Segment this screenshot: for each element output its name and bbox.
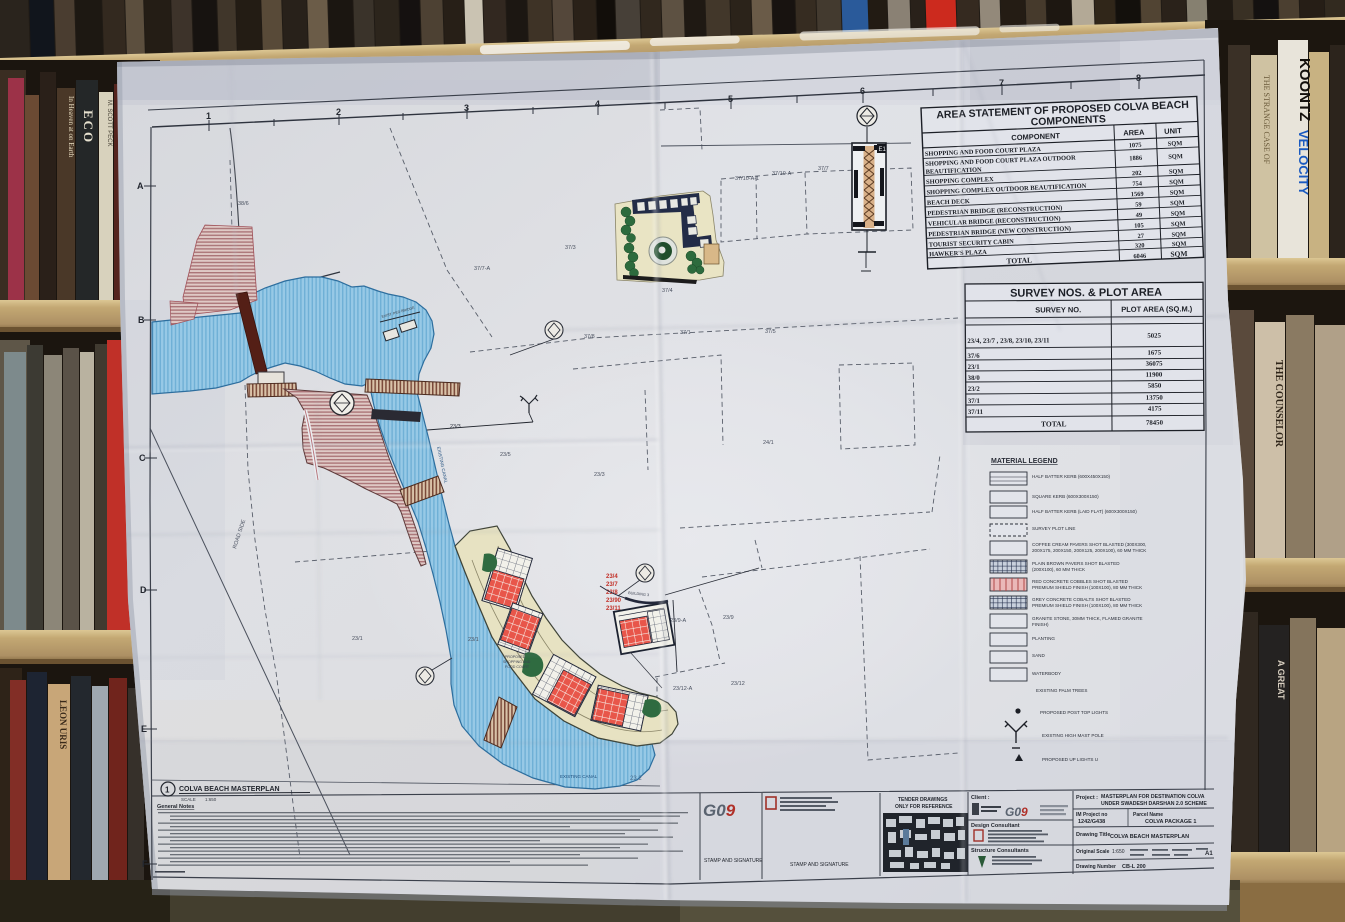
svg-text:Project :: Project : bbox=[1076, 795, 1098, 801]
svg-text:37/10-A: 37/10-A bbox=[772, 171, 792, 177]
svg-text:EXISTING CANAL: EXISTING CANAL bbox=[560, 774, 598, 779]
svg-text:THE STRANGE CASE OF: THE STRANGE CASE OF bbox=[1262, 75, 1271, 165]
svg-text:37/6: 37/6 bbox=[967, 353, 980, 360]
svg-text:Drawing Title: Drawing Title bbox=[1076, 832, 1110, 838]
svg-text:PREMIUM SHIELD FINISH (100X100: PREMIUM SHIELD FINISH (100X100), 80 MM T… bbox=[1032, 603, 1143, 608]
svg-text:SQM: SQM bbox=[1169, 179, 1184, 187]
svg-text:23/1: 23/1 bbox=[352, 636, 363, 642]
svg-text:4175: 4175 bbox=[1148, 406, 1162, 413]
svg-text:M. SCOTT PECK: M. SCOTT PECK bbox=[106, 100, 112, 147]
svg-text:PROPOSED UP LIGHTS U: PROPOSED UP LIGHTS U bbox=[1042, 757, 1098, 762]
svg-text:CB-L 200: CB-L 200 bbox=[1122, 864, 1146, 870]
svg-text:37/11: 37/11 bbox=[968, 409, 984, 416]
svg-text:5850: 5850 bbox=[1148, 383, 1162, 390]
svg-text:SURVEY PLOT LINE: SURVEY PLOT LINE bbox=[1032, 526, 1075, 531]
svg-text:(200X100), 60 MM THICK: (200X100), 60 MM THICK bbox=[1032, 567, 1086, 572]
svg-text:1886: 1886 bbox=[1129, 155, 1143, 163]
svg-text:SAND: SAND bbox=[1032, 653, 1045, 658]
svg-text:UNDER SWADESH DARSHAN 2.0 SCHE: UNDER SWADESH DARSHAN 2.0 SCHEME bbox=[1101, 801, 1207, 807]
svg-text:23/1: 23/1 bbox=[468, 637, 479, 643]
svg-text:GRANITE STONE, 30MM THICK, FLA: GRANITE STONE, 30MM THICK, FLAMED GRANIT… bbox=[1032, 616, 1143, 621]
svg-text:THE COUNSELOR: THE COUNSELOR bbox=[1273, 360, 1284, 448]
svg-text:23/3: 23/3 bbox=[450, 424, 461, 430]
svg-text:24/1: 24/1 bbox=[763, 440, 774, 446]
svg-text:Client :: Client : bbox=[971, 795, 990, 801]
svg-text:VELOCITY: VELOCITY bbox=[1296, 130, 1311, 195]
svg-text:105: 105 bbox=[1134, 222, 1144, 229]
svg-text:23/7: 23/7 bbox=[606, 582, 618, 588]
svg-text:23/4, 23/7 , 23/8, 23/10, 23/1: 23/4, 23/7 , 23/8, 23/10, 23/11 bbox=[967, 337, 1050, 345]
svg-text:HALF BATTER KERB (600X450X150): HALF BATTER KERB (600X450X150) bbox=[1032, 474, 1111, 479]
svg-text:EXISTING HIGH MAST POLE: EXISTING HIGH MAST POLE bbox=[1042, 733, 1104, 738]
svg-text:FOOD COURT: FOOD COURT bbox=[505, 665, 530, 669]
svg-text:HALF BATTER KERB (LAID FLAT) (: HALF BATTER KERB (LAID FLAT) (600X300X15… bbox=[1032, 509, 1137, 514]
svg-text:37/1: 37/1 bbox=[968, 398, 981, 405]
svg-text:1569: 1569 bbox=[1131, 191, 1144, 199]
svg-text:27: 27 bbox=[1137, 233, 1144, 240]
svg-text:23/5: 23/5 bbox=[500, 452, 511, 458]
svg-text:PLANTING: PLANTING bbox=[1032, 636, 1055, 641]
svg-text:A: A bbox=[137, 181, 144, 191]
svg-text:SQM: SQM bbox=[1171, 231, 1186, 239]
svg-text:STAMP AND SIGNATURE: STAMP AND SIGNATURE bbox=[704, 858, 763, 864]
svg-text:200X175, 200X150, 200X125, 200: 200X175, 200X150, 200X125, 200X100), 60 … bbox=[1032, 548, 1147, 553]
svg-text:SQM: SQM bbox=[1170, 249, 1187, 259]
svg-text:A1: A1 bbox=[1205, 851, 1213, 857]
svg-text:TOTAL: TOTAL bbox=[1041, 419, 1067, 428]
svg-text:COLVA BEACH MASTERPLAN: COLVA BEACH MASTERPLAN bbox=[1110, 834, 1189, 840]
svg-text:ECO: ECO bbox=[81, 110, 96, 144]
svg-text:SQM: SQM bbox=[1171, 210, 1186, 218]
svg-text:FINISH): FINISH) bbox=[1032, 622, 1049, 627]
svg-text:23/12-A: 23/12-A bbox=[673, 686, 693, 692]
svg-text:78450: 78450 bbox=[1146, 420, 1164, 427]
svg-text:23/9: 23/9 bbox=[723, 615, 734, 621]
svg-text:37/4: 37/4 bbox=[662, 288, 673, 294]
svg-text:A GREAT: A GREAT bbox=[1276, 660, 1286, 700]
svg-text:G09: G09 bbox=[703, 801, 736, 820]
svg-text:IM Project no: IM Project no bbox=[1076, 812, 1107, 818]
svg-text:PLAIN BROWN PAVERS SHOT BLASTE: PLAIN BROWN PAVERS SHOT BLASTED bbox=[1032, 561, 1120, 566]
svg-text:SQUARE KERB (600X300X150): SQUARE KERB (600X300X150) bbox=[1032, 494, 1099, 499]
svg-text:COFFEE CREAM PAVERS SHOT BLAST: COFFEE CREAM PAVERS SHOT BLASTED (300X30… bbox=[1032, 542, 1146, 547]
svg-text:PROPOSED POST TOP LIGHTS: PROPOSED POST TOP LIGHTS bbox=[1040, 710, 1108, 715]
svg-text:UNIT: UNIT bbox=[1164, 126, 1182, 136]
svg-text:WATERBODY: WATERBODY bbox=[1032, 671, 1061, 676]
svg-text:LEON URIS: LEON URIS bbox=[58, 700, 68, 749]
svg-text:General Notes: General Notes bbox=[157, 804, 194, 810]
svg-text:1: 1 bbox=[206, 111, 211, 121]
svg-text:1:650: 1:650 bbox=[205, 797, 217, 802]
svg-text:STAMP AND SIGNATURE: STAMP AND SIGNATURE bbox=[790, 862, 849, 868]
svg-text:36075: 36075 bbox=[1146, 361, 1164, 368]
svg-text:23/12: 23/12 bbox=[731, 681, 745, 687]
svg-text:TENDER DRAWINGS: TENDER DRAWINGS bbox=[898, 797, 948, 803]
svg-text:SHOPPING AND: SHOPPING AND bbox=[503, 660, 531, 664]
svg-text:PLOT AREA (SQ.M.): PLOT AREA (SQ.M.) bbox=[1121, 304, 1193, 313]
svg-text:SQM: SQM bbox=[1168, 153, 1183, 161]
svg-text:SURVEY NOS. & PLOT AREA: SURVEY NOS. & PLOT AREA bbox=[1010, 287, 1162, 300]
svg-text:23/9-A: 23/9-A bbox=[670, 618, 687, 624]
svg-text:23/4: 23/4 bbox=[606, 574, 618, 580]
svg-text:11900: 11900 bbox=[1146, 372, 1163, 379]
svg-text:Parcel Name: Parcel Name bbox=[1133, 812, 1163, 818]
svg-text:1075: 1075 bbox=[1129, 142, 1142, 150]
svg-text:23/1: 23/1 bbox=[968, 364, 981, 371]
svg-text:13750: 13750 bbox=[1146, 395, 1164, 402]
svg-text:KOONTZ: KOONTZ bbox=[1296, 58, 1313, 121]
svg-text:5025: 5025 bbox=[1147, 333, 1161, 340]
svg-text:B: B bbox=[138, 315, 145, 325]
svg-text:SQM: SQM bbox=[1170, 189, 1185, 197]
svg-text:SURVEY NO.: SURVEY NO. bbox=[1035, 305, 1081, 314]
svg-text:In Heaven at on Earth: In Heaven at on Earth bbox=[67, 96, 75, 158]
svg-text:Drawing Number: Drawing Number bbox=[1076, 864, 1116, 870]
svg-text:ONLY FOR REFERENCE: ONLY FOR REFERENCE bbox=[895, 804, 953, 810]
svg-text:754: 754 bbox=[1132, 180, 1143, 187]
svg-text:GREY CONCRETE COBALTS SHOT BLA: GREY CONCRETE COBALTS SHOT BLASTED bbox=[1032, 597, 1131, 602]
svg-text:E1: E1 bbox=[879, 147, 887, 153]
svg-text:COLVA PACKAGE 1: COLVA PACKAGE 1 bbox=[1145, 819, 1196, 825]
svg-text:6046: 6046 bbox=[1133, 253, 1147, 261]
svg-text:SCALE: SCALE bbox=[181, 797, 196, 802]
svg-text:1242/G438: 1242/G438 bbox=[1078, 819, 1105, 825]
svg-text:37/1: 37/1 bbox=[680, 330, 691, 336]
svg-text:Design Consultant: Design Consultant bbox=[971, 823, 1020, 829]
svg-text:23/2: 23/2 bbox=[968, 386, 981, 393]
svg-text:COLVA BEACH MASTERPLAN: COLVA BEACH MASTERPLAN bbox=[179, 786, 280, 793]
svg-text:1:650: 1:650 bbox=[1112, 849, 1125, 855]
svg-text:23/90: 23/90 bbox=[606, 598, 622, 604]
svg-text:37/3: 37/3 bbox=[565, 245, 576, 251]
svg-text:Original Scale: Original Scale bbox=[1076, 849, 1110, 855]
svg-text:202: 202 bbox=[1132, 170, 1142, 177]
svg-text:EXISTING PALM TREES: EXISTING PALM TREES bbox=[1036, 688, 1087, 693]
svg-text:37/10-A-1: 37/10-A-1 bbox=[735, 176, 759, 182]
svg-text:AREA: AREA bbox=[1123, 128, 1145, 138]
svg-text:1675: 1675 bbox=[1147, 350, 1161, 357]
svg-text:49: 49 bbox=[1136, 212, 1143, 219]
svg-text:23/3: 23/3 bbox=[594, 472, 605, 478]
svg-text:G09: G09 bbox=[1005, 805, 1028, 819]
svg-text:37/5: 37/5 bbox=[765, 329, 776, 335]
svg-text:38/0: 38/0 bbox=[968, 375, 981, 382]
svg-text:SQM: SQM bbox=[1170, 200, 1185, 208]
svg-text:38/6: 38/6 bbox=[238, 201, 249, 207]
svg-text:SQM: SQM bbox=[1168, 140, 1183, 148]
svg-text:SQM: SQM bbox=[1171, 221, 1186, 229]
svg-text:37/7-A: 37/7-A bbox=[474, 266, 491, 272]
svg-text:1: 1 bbox=[165, 786, 170, 795]
svg-text:PREMIUM SHIELD FINISH (100X100: PREMIUM SHIELD FINISH (100X100), 80 MM T… bbox=[1032, 585, 1143, 590]
svg-text:59: 59 bbox=[1135, 201, 1142, 208]
svg-text:37/8: 37/8 bbox=[584, 334, 595, 340]
svg-text:MASTERPLAN FOR DESTINATION COL: MASTERPLAN FOR DESTINATION COLVA bbox=[1101, 794, 1205, 800]
svg-text:MATERIAL LEGEND: MATERIAL LEGEND bbox=[991, 458, 1058, 465]
svg-text:TOTAL: TOTAL bbox=[1006, 255, 1032, 265]
svg-text:SQM: SQM bbox=[1169, 168, 1184, 176]
svg-text:Structure Consultants: Structure Consultants bbox=[971, 848, 1029, 854]
svg-text:37/7: 37/7 bbox=[818, 166, 829, 172]
svg-text:RED CONCRETE COBBLES SHOT BLAS: RED CONCRETE COBBLES SHOT BLASTED bbox=[1032, 579, 1129, 584]
svg-text:23 2: 23 2 bbox=[630, 776, 642, 782]
